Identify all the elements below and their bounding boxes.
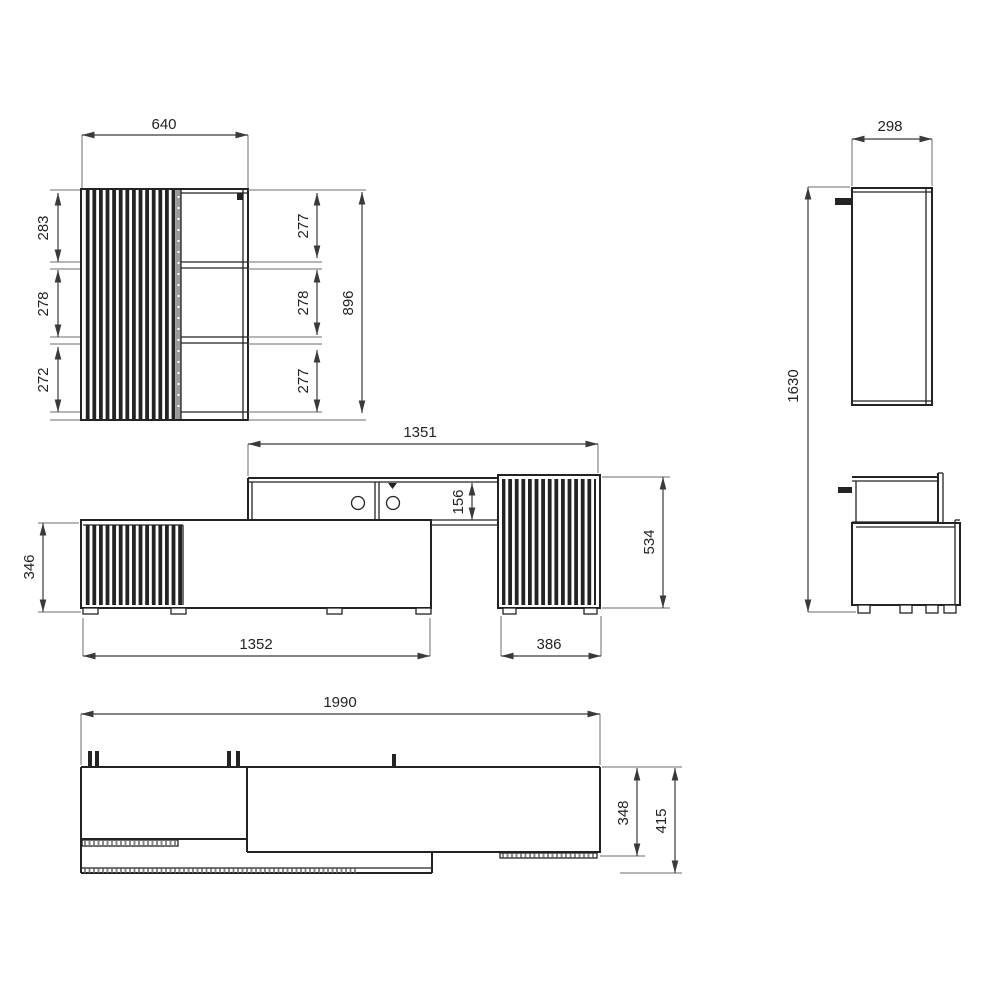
foot: [858, 605, 870, 613]
wall-peg: [236, 751, 240, 767]
shelf-bracket: [838, 487, 852, 493]
dim-label-side-cabinet-height: 534: [641, 529, 658, 554]
wall-peg: [392, 754, 396, 767]
dim-label-right-top: 277: [295, 213, 312, 238]
foot: [944, 605, 956, 613]
wall-bracket: [835, 198, 852, 205]
bench-side-outline: [852, 523, 960, 605]
hinge-mark-triangle: [388, 483, 397, 489]
foot: [171, 608, 186, 614]
cabinet-side-view: 298 1630: [785, 118, 960, 613]
foot: [900, 605, 912, 613]
dim-label-bench-width: 1352: [239, 636, 272, 653]
dim-label-left-bottom: 272: [35, 367, 52, 392]
dim-label-bench-height: 346: [21, 554, 38, 579]
dim-label-right-middle: 278: [295, 290, 312, 315]
wall-peg: [227, 751, 231, 767]
cable-hole: [352, 497, 365, 510]
foot: [926, 605, 938, 613]
dim-label-total-depth: 415: [653, 808, 670, 833]
bench-slatted-door: [83, 525, 183, 605]
dim-label-depth: 298: [877, 118, 902, 135]
dim-label-left-top: 283: [35, 215, 52, 240]
technical-drawing-canvas: 640 283 278 272 277 278 277 896: [0, 0, 1000, 1000]
dim-label-body-depth: 348: [615, 800, 632, 825]
cable-hole: [387, 497, 400, 510]
dim-label-cabinet-height: 896: [340, 290, 357, 315]
foot: [503, 608, 516, 614]
dim-label-left-middle: 278: [35, 291, 52, 316]
side-cabinet-slats: [502, 479, 596, 605]
foot: [83, 608, 98, 614]
wall-peg: [95, 751, 99, 767]
hinge-mark: [237, 193, 243, 200]
wall-peg: [88, 751, 92, 767]
plan-view: 1990 348 415: [81, 694, 682, 873]
slatted-door: [83, 190, 176, 419]
drawing-svg: 640 283 278 272 277 278 277 896: [0, 0, 1000, 1000]
dim-label-total-height: 1630: [785, 369, 802, 402]
foot: [416, 608, 431, 614]
cabinet-front-view: 640 283 278 272 277 278 277 896: [35, 116, 366, 420]
wall-unit-front-view: 156 1351 346 1352 386 534: [21, 424, 670, 656]
dim-label-cabinet-width: 640: [151, 116, 176, 133]
dim-label-right-bottom: 277: [295, 368, 312, 393]
dim-label-shelf-width: 1351: [403, 424, 436, 441]
foot: [327, 608, 342, 614]
foot: [584, 608, 597, 614]
side-cabinet-outline: [852, 188, 932, 405]
dim-label-shelf-height: 156: [450, 489, 467, 514]
dim-label-side-cabinet-width: 386: [536, 636, 561, 653]
dim-label-total-width: 1990: [323, 694, 356, 711]
